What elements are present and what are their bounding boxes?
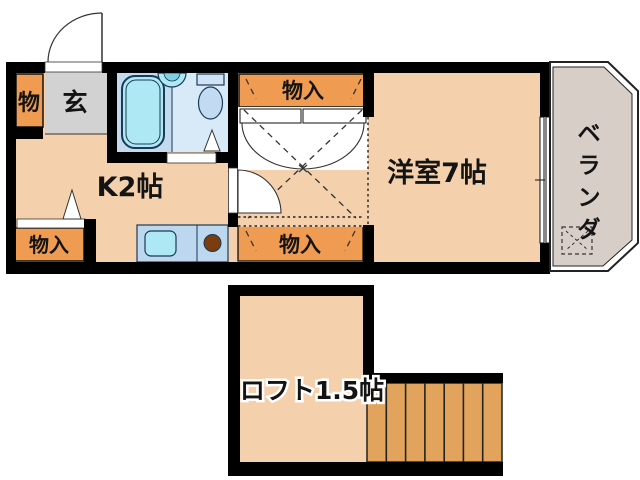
veranda-label-char-4: ダ	[578, 216, 601, 243]
veranda-label-char-1: ベ	[578, 121, 601, 147]
wall-bottom	[6, 262, 550, 274]
main-floor-unit: 物 玄 K2帖 物入 物入 物入 洋室7帖 ベ ラ ン ダ	[6, 13, 638, 274]
kitchen-label: K2帖	[97, 172, 164, 203]
storage-label-center-bottom: 物入	[279, 233, 321, 257]
floorplan-page: 物 玄 K2帖 物入 物入 物入 洋室7帖 ベ ラ ン ダ	[0, 0, 640, 480]
entry-door-group	[45, 13, 102, 72]
wall-storage-right-stub	[84, 219, 96, 262]
wall-bathroom-bottom-left	[107, 152, 167, 163]
loft-wall-bottom	[228, 462, 503, 476]
storage-label-bottom-left: 物入	[29, 233, 69, 257]
floorplan-canvas: 物 玄 K2帖 物入 物入 物入 洋室7帖 ベ ラ ン ダ	[0, 0, 640, 480]
loft-floor-unit: ロフト1.5帖	[228, 285, 503, 476]
loft-wall-inner	[363, 285, 374, 373]
entry-door-arc	[48, 13, 102, 62]
bathroom-threshold	[167, 153, 216, 163]
wall-bathroom-left	[107, 73, 117, 163]
center-door-leaf	[229, 168, 238, 213]
wall-center-divider-stub	[228, 213, 238, 227]
wall-western-room-left	[363, 73, 374, 117]
bathtub-icon	[122, 76, 164, 148]
entrance-closet-label: 物	[18, 90, 40, 116]
closet-door-right-panel	[303, 109, 366, 123]
wall-entrance-closet-bottom	[6, 127, 43, 139]
entry-threshold	[45, 62, 102, 72]
stairs-area	[367, 383, 502, 462]
western-room-label: 洋室7帖	[387, 157, 487, 189]
stairs-group	[367, 383, 502, 462]
veranda-label-char-2: ラ	[578, 153, 601, 179]
loft-wall-left	[228, 285, 240, 476]
kitchen-sink-icon	[145, 231, 176, 256]
wall-top-main	[102, 62, 548, 73]
wall-center-storage-right	[363, 225, 374, 262]
wall-right-upper	[540, 62, 550, 117]
toilet-bowl-icon	[199, 87, 223, 119]
wall-left	[6, 62, 16, 274]
toilet-tank-icon	[197, 74, 224, 85]
veranda-label-char-3: ン	[578, 185, 601, 211]
closet-door-left-panel	[240, 109, 301, 123]
wall-center-divider-upper	[228, 73, 238, 168]
wall-right-lower	[540, 243, 550, 274]
bathroom-group	[117, 73, 228, 152]
storage-door-strip	[17, 219, 85, 228]
burner-icon	[204, 235, 221, 252]
loft-wall-top	[228, 285, 374, 296]
entrance-label: 玄	[62, 88, 87, 117]
loft-label: ロフト1.5帖	[240, 376, 384, 405]
storage-label-center-top: 物入	[282, 79, 324, 103]
